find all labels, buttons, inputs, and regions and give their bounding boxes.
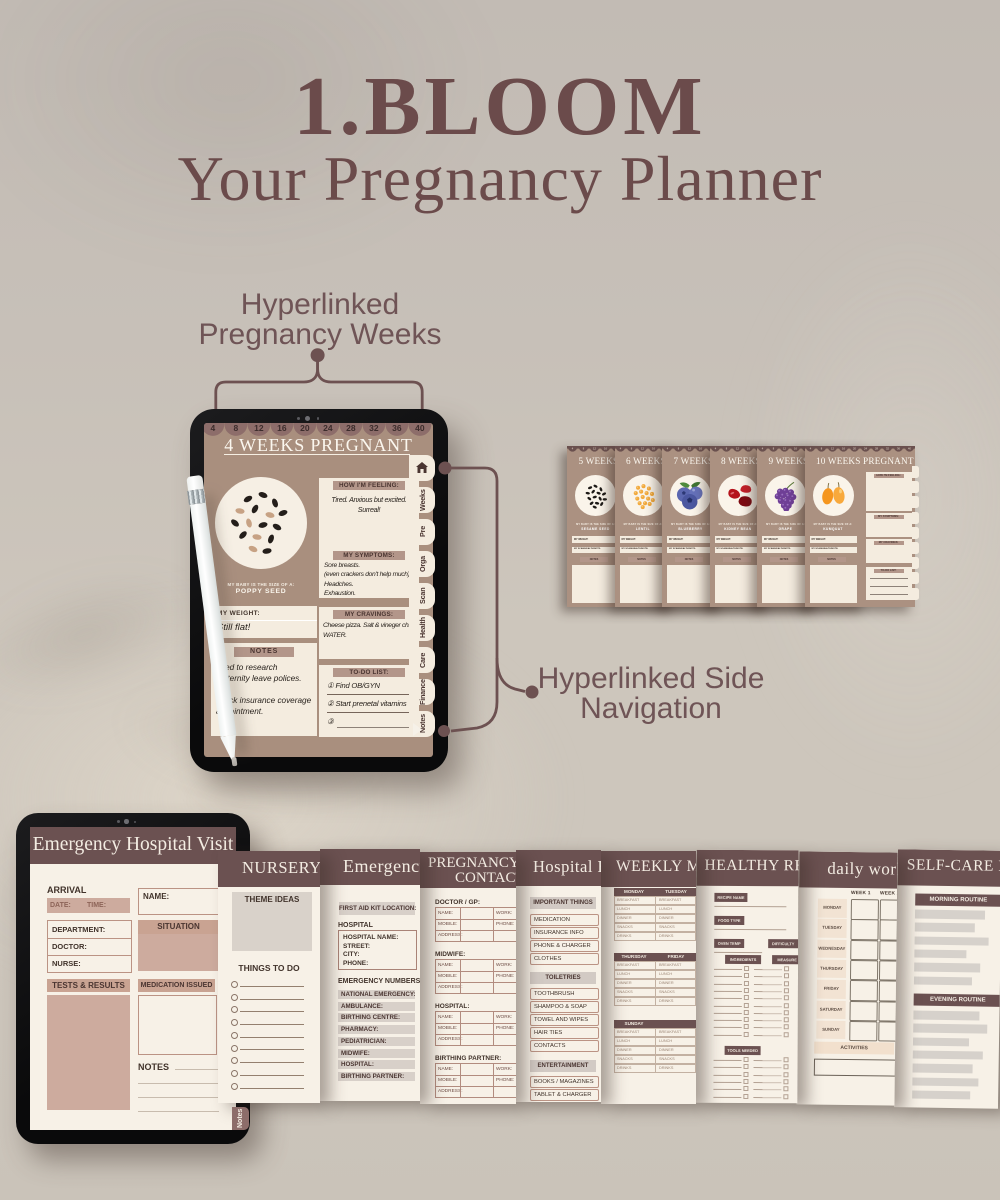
svg-text:40: 40 xyxy=(415,423,425,433)
svg-text:28: 28 xyxy=(346,423,356,433)
svg-text:32: 32 xyxy=(369,423,379,433)
svg-text:20: 20 xyxy=(300,423,310,433)
svg-text:16: 16 xyxy=(277,423,287,433)
svg-text:8: 8 xyxy=(234,423,239,433)
svg-text:12: 12 xyxy=(254,423,264,433)
svg-text:4: 4 xyxy=(211,423,216,433)
svg-text:24: 24 xyxy=(323,423,333,433)
svg-text:36: 36 xyxy=(392,423,402,433)
